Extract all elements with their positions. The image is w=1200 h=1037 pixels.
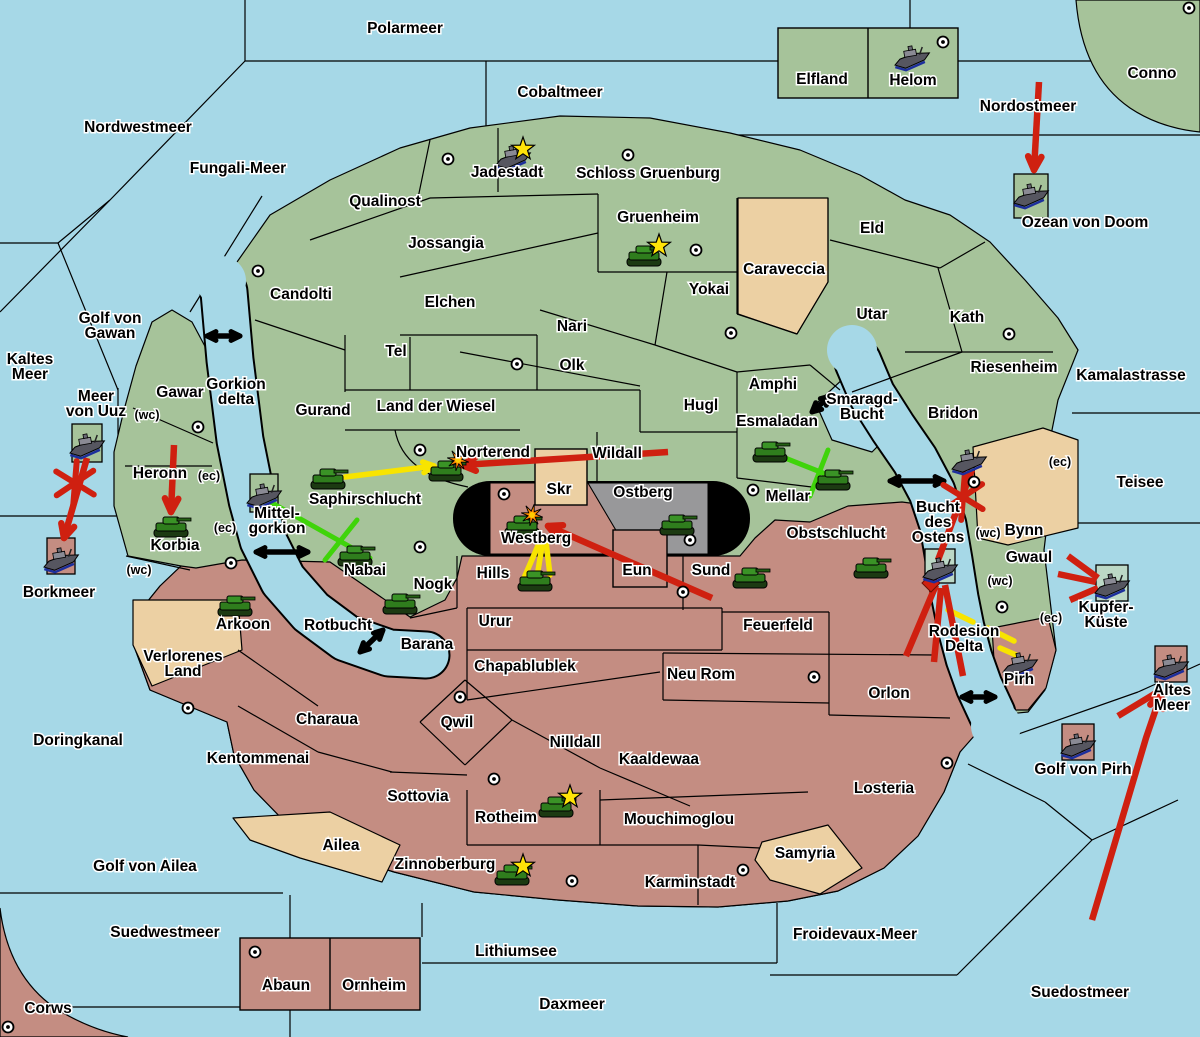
territory-label: Utar	[856, 306, 887, 323]
territory-label: Sund	[692, 562, 731, 579]
territory-label: Kentommenai	[207, 750, 310, 767]
territory-label: Tel	[385, 343, 406, 360]
territory-label: Obstschlucht	[786, 525, 885, 542]
territory-label: Bynn	[1005, 522, 1044, 539]
territory-label: Arkoon	[216, 616, 270, 633]
sea-label: Mittel-gorkion	[249, 505, 306, 537]
tank-turret	[762, 442, 778, 449]
tank-barrel	[241, 597, 255, 600]
tank-barrel	[334, 470, 348, 473]
ship-bridge	[1108, 574, 1113, 579]
coast-tag-label: (wc)	[135, 408, 160, 422]
ship-bridge	[57, 548, 62, 553]
territory-label: Olk	[560, 357, 585, 374]
territory-label: Karminstadt	[645, 874, 735, 891]
city-center-dot	[688, 538, 692, 542]
tank-turret	[863, 558, 879, 565]
territory-label: Bridon	[928, 405, 978, 422]
city-center-dot	[418, 545, 422, 549]
city-center-dot	[626, 153, 630, 157]
territory-label: Charaua	[296, 711, 358, 728]
sea-label: AltesMeer	[1153, 682, 1191, 714]
sea-label: Polarmeer	[367, 20, 443, 37]
sea-label: Daxmeer	[539, 996, 605, 1013]
border-line	[548, 525, 563, 526]
tank-turret	[636, 246, 652, 253]
sea-label: Fungali-Meer	[190, 160, 286, 177]
ship-bridge	[1074, 734, 1079, 739]
coast-tag-label: (ec)	[1040, 611, 1062, 625]
city-center-dot	[492, 777, 496, 781]
territory-label: Qualinost	[349, 193, 420, 210]
tank-barrel	[756, 569, 770, 572]
city-center-dot	[446, 157, 450, 161]
territory-label: Hills	[477, 565, 510, 582]
territory-label: Land der Wiesel	[377, 398, 496, 415]
territory-label: Eld	[860, 220, 884, 237]
territory-label: Eun	[622, 562, 651, 579]
territory-label: Ostberg	[613, 484, 672, 501]
territory-label: Jadestadt	[471, 164, 543, 181]
territory-label: Skr	[547, 481, 572, 498]
territory-label: Riesenheim	[970, 359, 1057, 376]
ship-bridge	[936, 558, 941, 563]
sea-label: Suedwestmeer	[110, 924, 219, 941]
sea-label: Rotbucht	[304, 617, 372, 634]
territory-label: Nabai	[344, 562, 386, 579]
tank-turret	[825, 470, 841, 477]
city-center-dot	[945, 761, 949, 765]
territory-label: Mouchimoglou	[624, 811, 734, 828]
city-center-dot	[229, 561, 233, 565]
territory-label: Kaaldewaa	[619, 751, 700, 768]
territory-label: Gruenheim	[617, 209, 699, 226]
war-map: PolarmeerNordwestmeerFungali-MeerCobaltm…	[0, 0, 1200, 1037]
explosion-core	[529, 512, 535, 518]
sea-label: Suedostmeer	[1031, 984, 1129, 1001]
territory-label: Esmaladan	[736, 413, 818, 430]
territory-label: Feuerfeld	[743, 617, 813, 634]
tank-barrel	[361, 547, 375, 550]
coast-tag-label: (wc)	[988, 574, 1013, 588]
sea-label: Ozean von Doom	[1022, 214, 1149, 231]
ship-bridge	[1016, 653, 1021, 658]
city-center-dot	[751, 488, 755, 492]
territory-label: Nari	[557, 318, 587, 335]
territory-label: Jossangia	[408, 235, 484, 252]
ship-bridge	[260, 484, 265, 489]
city-center-dot	[253, 950, 257, 954]
territory-label: Orlon	[868, 685, 909, 702]
city-center-dot	[812, 675, 816, 679]
tank-turret	[548, 797, 564, 804]
territory-label: Ailea	[322, 837, 359, 854]
territory-label: Elfland	[796, 71, 848, 88]
sea-label: Teisee	[1116, 474, 1163, 491]
map-canvas: PolarmeerNordwestmeerFungali-MeerCobaltm…	[0, 0, 1200, 1037]
tank-barrel	[406, 595, 420, 598]
border-line	[380, 630, 383, 639]
territory-label: Nilldall	[550, 734, 601, 751]
sea-label: Borkmeer	[23, 584, 95, 601]
territory-label: Ornheim	[342, 977, 406, 994]
ship-bridge	[1027, 184, 1032, 189]
city-center-dot	[502, 492, 506, 496]
city-center-dot	[6, 1025, 10, 1029]
sea-label: KaltesMeer	[7, 351, 54, 383]
coast-tag-label: (ec)	[1049, 455, 1071, 469]
territory-label: Kath	[950, 309, 984, 326]
territory-label: Pirh	[1004, 671, 1034, 688]
sea-label: Doringkanal	[33, 732, 123, 749]
border-line	[61, 523, 64, 538]
territory-label: Wildall	[592, 445, 642, 462]
territory-label: Nogk	[414, 576, 453, 593]
tank-barrel	[177, 518, 191, 521]
sea-label: Golf von Pirh	[1034, 761, 1131, 778]
territory-label: Mellar	[766, 488, 811, 505]
city-center-dot	[515, 362, 519, 366]
coast-tag-label: (ec)	[214, 521, 236, 535]
territory-label: Conno	[1127, 65, 1176, 82]
territory-label: Korbia	[150, 537, 199, 554]
city-center-dot	[256, 269, 260, 273]
city-center-dot	[458, 695, 462, 699]
territory-label: Gwaul	[1006, 549, 1053, 566]
territory-label: Neu Rom	[667, 666, 735, 683]
territory-label: Saphirschlucht	[309, 491, 421, 508]
territory-label: Qwil	[441, 714, 474, 731]
city-center-dot	[681, 590, 685, 594]
ship-bridge	[83, 434, 88, 439]
territory-label: Urur	[479, 613, 512, 630]
city-center-dot	[972, 480, 976, 484]
city-center-dot	[941, 40, 945, 44]
territory-label: Schloss Gruenburg	[576, 165, 720, 182]
tank-barrel	[683, 516, 697, 519]
territory-label: Barana	[401, 636, 454, 653]
territory-label: Amphi	[749, 376, 797, 393]
city-center-dot	[694, 248, 698, 252]
tank-turret	[742, 568, 758, 575]
territory-label: Corws	[24, 1000, 71, 1017]
tank-barrel	[877, 559, 891, 562]
tank-barrel	[776, 443, 790, 446]
channel-mouth	[827, 325, 877, 375]
territory-label: Candolti	[270, 286, 332, 303]
territory-label: Norterend	[456, 444, 530, 461]
border-line	[812, 403, 816, 412]
territory-label: Rotheim	[475, 809, 537, 826]
tank-turret	[669, 515, 685, 522]
coast-tag-label: (wc)	[976, 526, 1001, 540]
territory-label: Chapablublek	[474, 658, 576, 675]
border-line	[360, 643, 363, 652]
territory-label: Samyria	[775, 845, 836, 862]
channel-mouth	[196, 256, 246, 306]
ship-bridge	[965, 450, 970, 455]
sea-label: Nordwestmeer	[84, 119, 192, 136]
sea-label: Kupfer-Küste	[1078, 599, 1133, 631]
city-center-dot	[1187, 6, 1191, 10]
territory-label: Gurand	[295, 402, 350, 419]
territory-label: Westberg	[501, 530, 571, 547]
territory-label: Gawar	[156, 384, 203, 401]
ship-bridge	[1167, 655, 1172, 660]
city-center-dot	[570, 879, 574, 883]
sea-label: Cobaltmeer	[517, 84, 602, 101]
city-center-dot	[741, 868, 745, 872]
tank-turret	[527, 571, 543, 578]
city-center-dot	[729, 331, 733, 335]
city-center-dot	[196, 425, 200, 429]
sea-label: Golf vonGawan	[79, 310, 142, 342]
territory-label: Helom	[889, 72, 936, 89]
tank-barrel	[541, 572, 555, 575]
tank-barrel	[839, 471, 853, 474]
territory-label: Hugl	[684, 397, 718, 414]
sea-label: Froidevaux-Meer	[793, 926, 917, 943]
ship-bridge	[908, 46, 913, 51]
sea-label: Golf von Ailea	[93, 858, 197, 875]
city-center-dot	[418, 448, 422, 452]
coast-tag-label: (wc)	[127, 563, 152, 577]
territory-label: Caraveccia	[743, 261, 825, 278]
territory-label: Losteria	[854, 780, 915, 797]
territory-label: Abaun	[262, 977, 310, 994]
territory-label: Zinnoberburg	[395, 856, 496, 873]
city-center-dot	[1000, 605, 1004, 609]
territory-label: Heronn	[133, 465, 187, 482]
sea-label: Lithiumsee	[475, 943, 557, 960]
territory-label: Sottovia	[387, 788, 449, 805]
coast-tag-label: (ec)	[198, 469, 220, 483]
territory-label: Elchen	[425, 294, 476, 311]
territory-label: Yokai	[689, 281, 729, 298]
sea-label: Nordostmeer	[980, 98, 1076, 115]
channel-mouth	[971, 701, 1021, 751]
city-center-dot	[1007, 332, 1011, 336]
sea-label: Kamalastrasse	[1076, 367, 1186, 384]
city-center-dot	[186, 706, 190, 710]
